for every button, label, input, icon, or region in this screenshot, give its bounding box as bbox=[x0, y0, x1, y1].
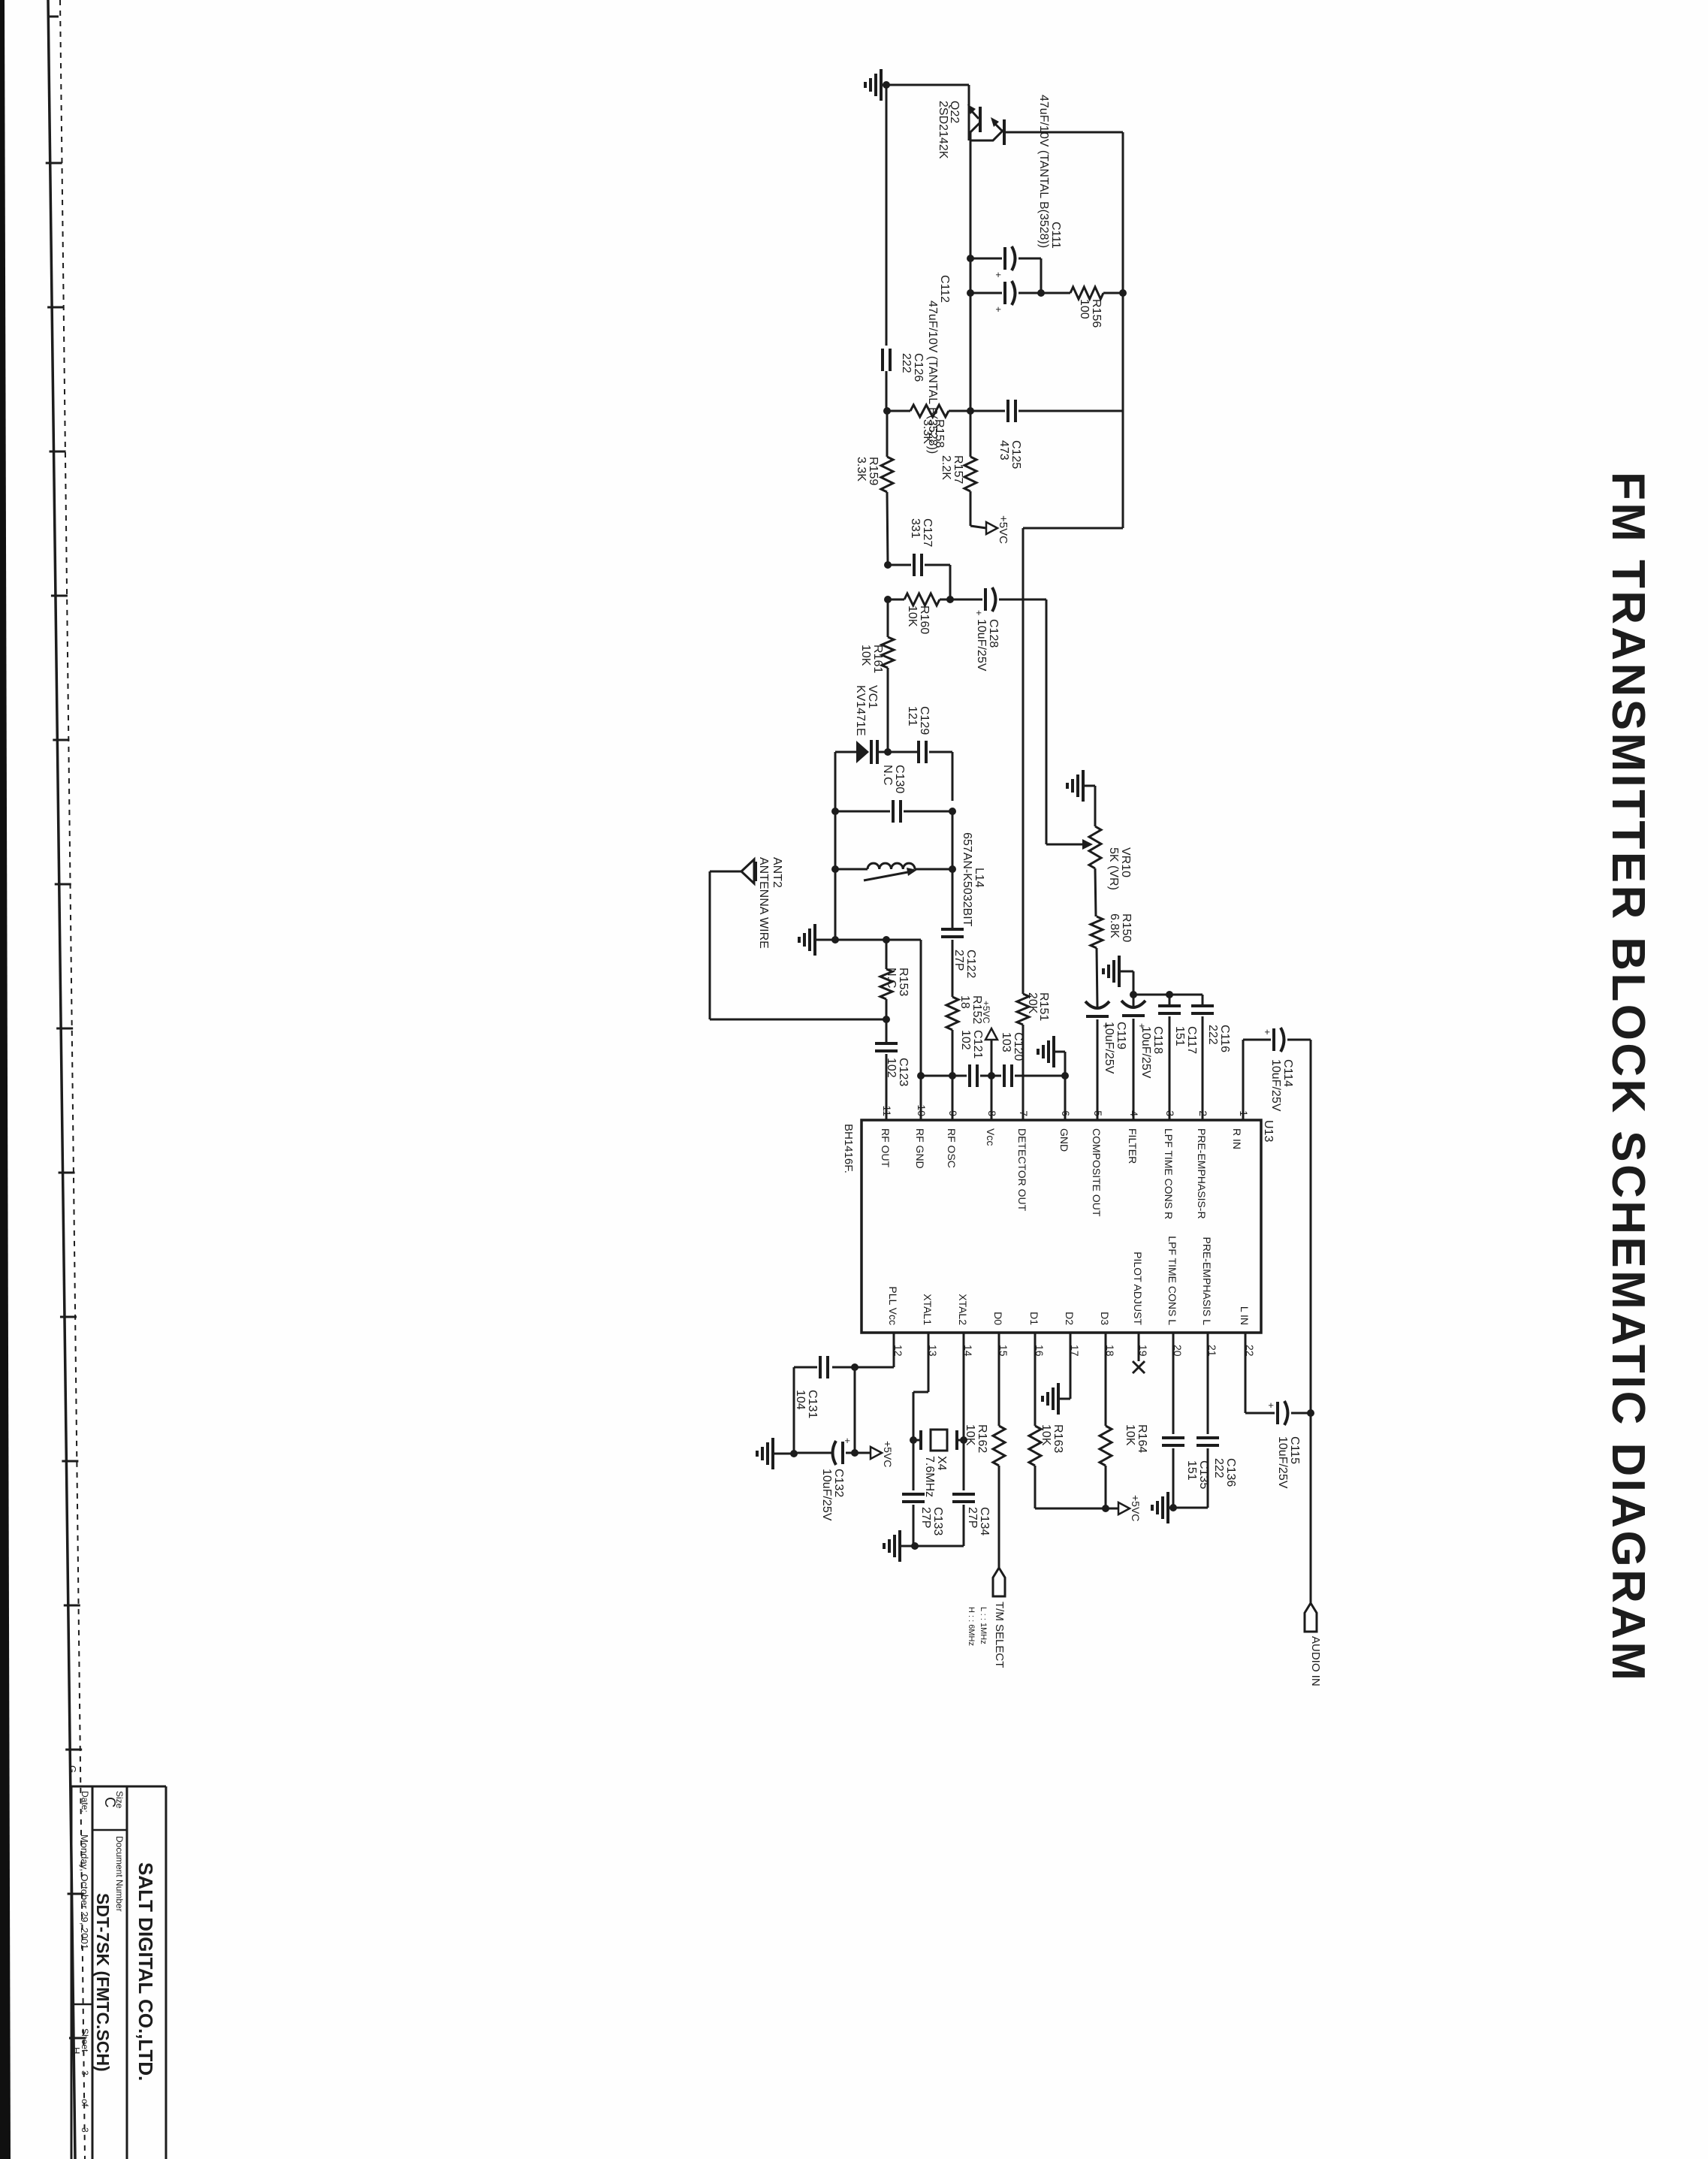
svg-text:102: 102 bbox=[885, 1058, 898, 1078]
svg-text:GND: GND bbox=[1058, 1128, 1070, 1152]
svg-text:C132: C132 bbox=[832, 1469, 845, 1497]
svg-text:COMPOSITE OUT: COMPOSITE OUT bbox=[1091, 1128, 1103, 1217]
svg-text:C122: C122 bbox=[964, 950, 977, 978]
svg-text:+: + bbox=[1262, 1029, 1273, 1035]
svg-text:DETECTOR OUT: DETECTOR OUT bbox=[1016, 1128, 1028, 1212]
svg-text:27P: 27P bbox=[919, 1507, 932, 1528]
svg-text:222: 222 bbox=[900, 353, 913, 373]
svg-text:D3: D3 bbox=[1099, 1312, 1111, 1325]
svg-text:D0: D0 bbox=[992, 1312, 1004, 1325]
svg-text:3: 3 bbox=[80, 2127, 90, 2133]
svg-text:331: 331 bbox=[909, 518, 922, 539]
svg-text:C136: C136 bbox=[1224, 1458, 1237, 1487]
svg-text:LPF TIME CONS L: LPF TIME CONS L bbox=[1166, 1236, 1178, 1325]
svg-text:3.3K: 3.3K bbox=[921, 419, 934, 444]
svg-text:L : : 1MHz: L : : 1MHz bbox=[979, 1607, 988, 1644]
svg-text:D2: D2 bbox=[1064, 1312, 1076, 1325]
svg-text:10uF/25V: 10uF/25V bbox=[1103, 1022, 1115, 1074]
svg-text:104: 104 bbox=[794, 1390, 807, 1410]
svg-text:FM TRANSMITTER BLOCK SCHEMATIC: FM TRANSMITTER BLOCK SCHEMATIC DIAGRAM bbox=[1602, 472, 1654, 1683]
svg-text:C114: C114 bbox=[1281, 1059, 1294, 1087]
svg-text:R156: R156 bbox=[1090, 299, 1103, 328]
svg-text:U13: U13 bbox=[1262, 1120, 1275, 1142]
svg-text:102: 102 bbox=[959, 1030, 972, 1050]
svg-text:SALT DIGITAL CO.,LTD.: SALT DIGITAL CO.,LTD. bbox=[134, 1862, 157, 2081]
svg-text:C123: C123 bbox=[897, 1058, 910, 1086]
svg-text:10uF/25V: 10uF/25V bbox=[975, 619, 988, 672]
svg-text:G: G bbox=[67, 1765, 78, 1773]
svg-text:T/M SELECT: T/M SELECT bbox=[993, 1602, 1006, 1668]
svg-text:C129: C129 bbox=[918, 706, 931, 735]
svg-text:N.C: N.C bbox=[885, 968, 898, 989]
svg-text:+5VC: +5VC bbox=[997, 515, 1009, 544]
svg-text:10uF/25V: 10uF/25V bbox=[820, 1469, 833, 1521]
svg-text:C117: C117 bbox=[1185, 1026, 1198, 1054]
svg-text:Vcc: Vcc bbox=[985, 1128, 997, 1146]
svg-text:27P: 27P bbox=[966, 1507, 979, 1528]
svg-text:L IN: L IN bbox=[1239, 1306, 1251, 1325]
svg-text:C119: C119 bbox=[1115, 1022, 1127, 1049]
svg-text:KV1471E: KV1471E bbox=[854, 685, 867, 736]
svg-text:+: + bbox=[993, 272, 1004, 278]
svg-text:10K: 10K bbox=[1124, 1424, 1136, 1446]
svg-text:C115: C115 bbox=[1288, 1436, 1301, 1464]
svg-text:657AN-K5032BIT: 657AN-K5032BIT bbox=[961, 832, 973, 927]
svg-text:3.3K: 3.3K bbox=[855, 457, 868, 482]
svg-text:L14: L14 bbox=[973, 868, 985, 888]
svg-text:47uF/10V (TANTAL B(3528)): 47uF/10V (TANTAL B(3528)) bbox=[1037, 95, 1050, 248]
svg-text:10uF/25V: 10uF/25V bbox=[1269, 1059, 1282, 1112]
svg-text:R162: R162 bbox=[976, 1424, 988, 1453]
svg-text:3: 3 bbox=[80, 2070, 90, 2076]
svg-text:C125: C125 bbox=[1009, 440, 1022, 469]
svg-text:R159: R159 bbox=[867, 457, 880, 485]
svg-text:C128: C128 bbox=[987, 619, 1000, 648]
svg-text:LPF TIME CONS R: LPF TIME CONS R bbox=[1163, 1128, 1175, 1219]
svg-text:VC1: VC1 bbox=[866, 685, 879, 708]
svg-text:XTAL1: XTAL1 bbox=[922, 1294, 934, 1325]
svg-text:C131: C131 bbox=[806, 1390, 819, 1418]
svg-text:XTAL2: XTAL2 bbox=[957, 1294, 969, 1325]
svg-text:2SD2142K: 2SD2142K bbox=[937, 101, 949, 159]
svg-text:R161: R161 bbox=[871, 645, 884, 673]
svg-text:PRE-EMPHASIS L: PRE-EMPHASIS L bbox=[1201, 1237, 1213, 1326]
svg-text:121: 121 bbox=[906, 706, 919, 726]
svg-text:N.C: N.C bbox=[881, 765, 894, 786]
svg-text:PLL Vcc: PLL Vcc bbox=[887, 1286, 899, 1325]
svg-text:18: 18 bbox=[958, 995, 971, 1009]
svg-text:ANTENNA WIRE: ANTENNA WIRE bbox=[757, 857, 770, 949]
svg-text:Date:: Date: bbox=[80, 1791, 90, 1813]
svg-text:SDT-7SK (FMTC.SCH): SDT-7SK (FMTC.SCH) bbox=[93, 1893, 113, 2072]
svg-text:R163: R163 bbox=[1052, 1424, 1064, 1453]
svg-text:VR10: VR10 bbox=[1119, 847, 1132, 877]
svg-text:2.2K: 2.2K bbox=[940, 455, 952, 480]
svg-text:ANT2: ANT2 bbox=[771, 857, 783, 888]
svg-text:10K: 10K bbox=[859, 645, 872, 666]
svg-text:C: C bbox=[101, 1797, 118, 1807]
svg-text:+5VC: +5VC bbox=[882, 1441, 894, 1467]
svg-text:AUDIO IN: AUDIO IN bbox=[1309, 1636, 1322, 1686]
svg-text:Monday, October 29, 2001: Monday, October 29, 2001 bbox=[79, 1834, 90, 1949]
svg-text:10K: 10K bbox=[906, 605, 919, 627]
svg-text:PILOT ADJUST: PILOT ADJUST bbox=[1132, 1252, 1144, 1325]
svg-text:R150: R150 bbox=[1120, 913, 1133, 942]
svg-text:6.8K: 6.8K bbox=[1108, 913, 1121, 938]
svg-text:C118: C118 bbox=[1151, 1026, 1164, 1054]
svg-text:of: of bbox=[80, 2099, 90, 2107]
svg-text:100: 100 bbox=[1078, 299, 1091, 319]
svg-text:X4: X4 bbox=[935, 1456, 948, 1471]
svg-text:20K: 20K bbox=[1026, 992, 1039, 1014]
svg-text:C112: C112 bbox=[938, 275, 951, 303]
svg-text:+: + bbox=[842, 1438, 853, 1444]
svg-text:5K (VR): 5K (VR) bbox=[1107, 847, 1120, 890]
svg-text:222: 222 bbox=[1206, 1025, 1219, 1045]
svg-text:10K: 10K bbox=[1040, 1424, 1052, 1446]
svg-text:+: + bbox=[973, 610, 985, 616]
svg-text:C121: C121 bbox=[971, 1030, 984, 1058]
svg-text:R164: R164 bbox=[1136, 1424, 1148, 1453]
svg-text:7.6MHz: 7.6MHz bbox=[923, 1456, 936, 1497]
svg-text:R158: R158 bbox=[933, 419, 946, 448]
svg-text:R157: R157 bbox=[952, 455, 964, 484]
svg-text:+: + bbox=[1266, 1403, 1277, 1409]
svg-text:C116: C116 bbox=[1218, 1025, 1231, 1052]
svg-text:151: 151 bbox=[1185, 1460, 1198, 1481]
svg-text:R153: R153 bbox=[897, 968, 910, 996]
svg-text:151: 151 bbox=[1173, 1026, 1186, 1046]
svg-text:R IN: R IN bbox=[1231, 1128, 1243, 1149]
svg-text:27P: 27P bbox=[952, 950, 965, 971]
svg-text:+5VC: +5VC bbox=[1130, 1495, 1142, 1521]
svg-text:Document Number: Document Number bbox=[114, 1836, 125, 1912]
svg-text:H : : 6MHz: H : : 6MHz bbox=[967, 1607, 976, 1646]
svg-text:C134: C134 bbox=[978, 1507, 991, 1535]
svg-text:C111: C111 bbox=[1049, 222, 1062, 249]
svg-text:+5VC: +5VC bbox=[981, 1001, 991, 1024]
svg-text:10K: 10K bbox=[964, 1424, 976, 1446]
svg-text:10uF/25V: 10uF/25V bbox=[1139, 1026, 1152, 1079]
svg-text:BH1416F.: BH1416F. bbox=[842, 1124, 855, 1173]
svg-text:RF OUT: RF OUT bbox=[880, 1128, 892, 1168]
svg-text:D1: D1 bbox=[1028, 1312, 1040, 1325]
svg-text:C130: C130 bbox=[893, 765, 906, 793]
svg-text:C126: C126 bbox=[912, 353, 925, 382]
svg-text:RF GND: RF GND bbox=[914, 1128, 926, 1169]
svg-text:PRE-EMPHASIS-R: PRE-EMPHASIS-R bbox=[1196, 1128, 1208, 1219]
svg-text:C133: C133 bbox=[931, 1507, 944, 1535]
svg-text:+: + bbox=[993, 306, 1004, 313]
svg-text:103: 103 bbox=[1000, 1032, 1012, 1052]
svg-text:222: 222 bbox=[1212, 1458, 1225, 1478]
svg-text:R160: R160 bbox=[918, 605, 931, 634]
svg-text:10uF/25V: 10uF/25V bbox=[1276, 1436, 1289, 1489]
svg-text:C127: C127 bbox=[921, 518, 934, 547]
svg-text:RF OSC: RF OSC bbox=[946, 1128, 958, 1168]
svg-text:473: 473 bbox=[997, 440, 1010, 460]
svg-text:FILTER: FILTER bbox=[1127, 1128, 1139, 1164]
svg-text:Sheet: Sheet bbox=[80, 2028, 90, 2052]
